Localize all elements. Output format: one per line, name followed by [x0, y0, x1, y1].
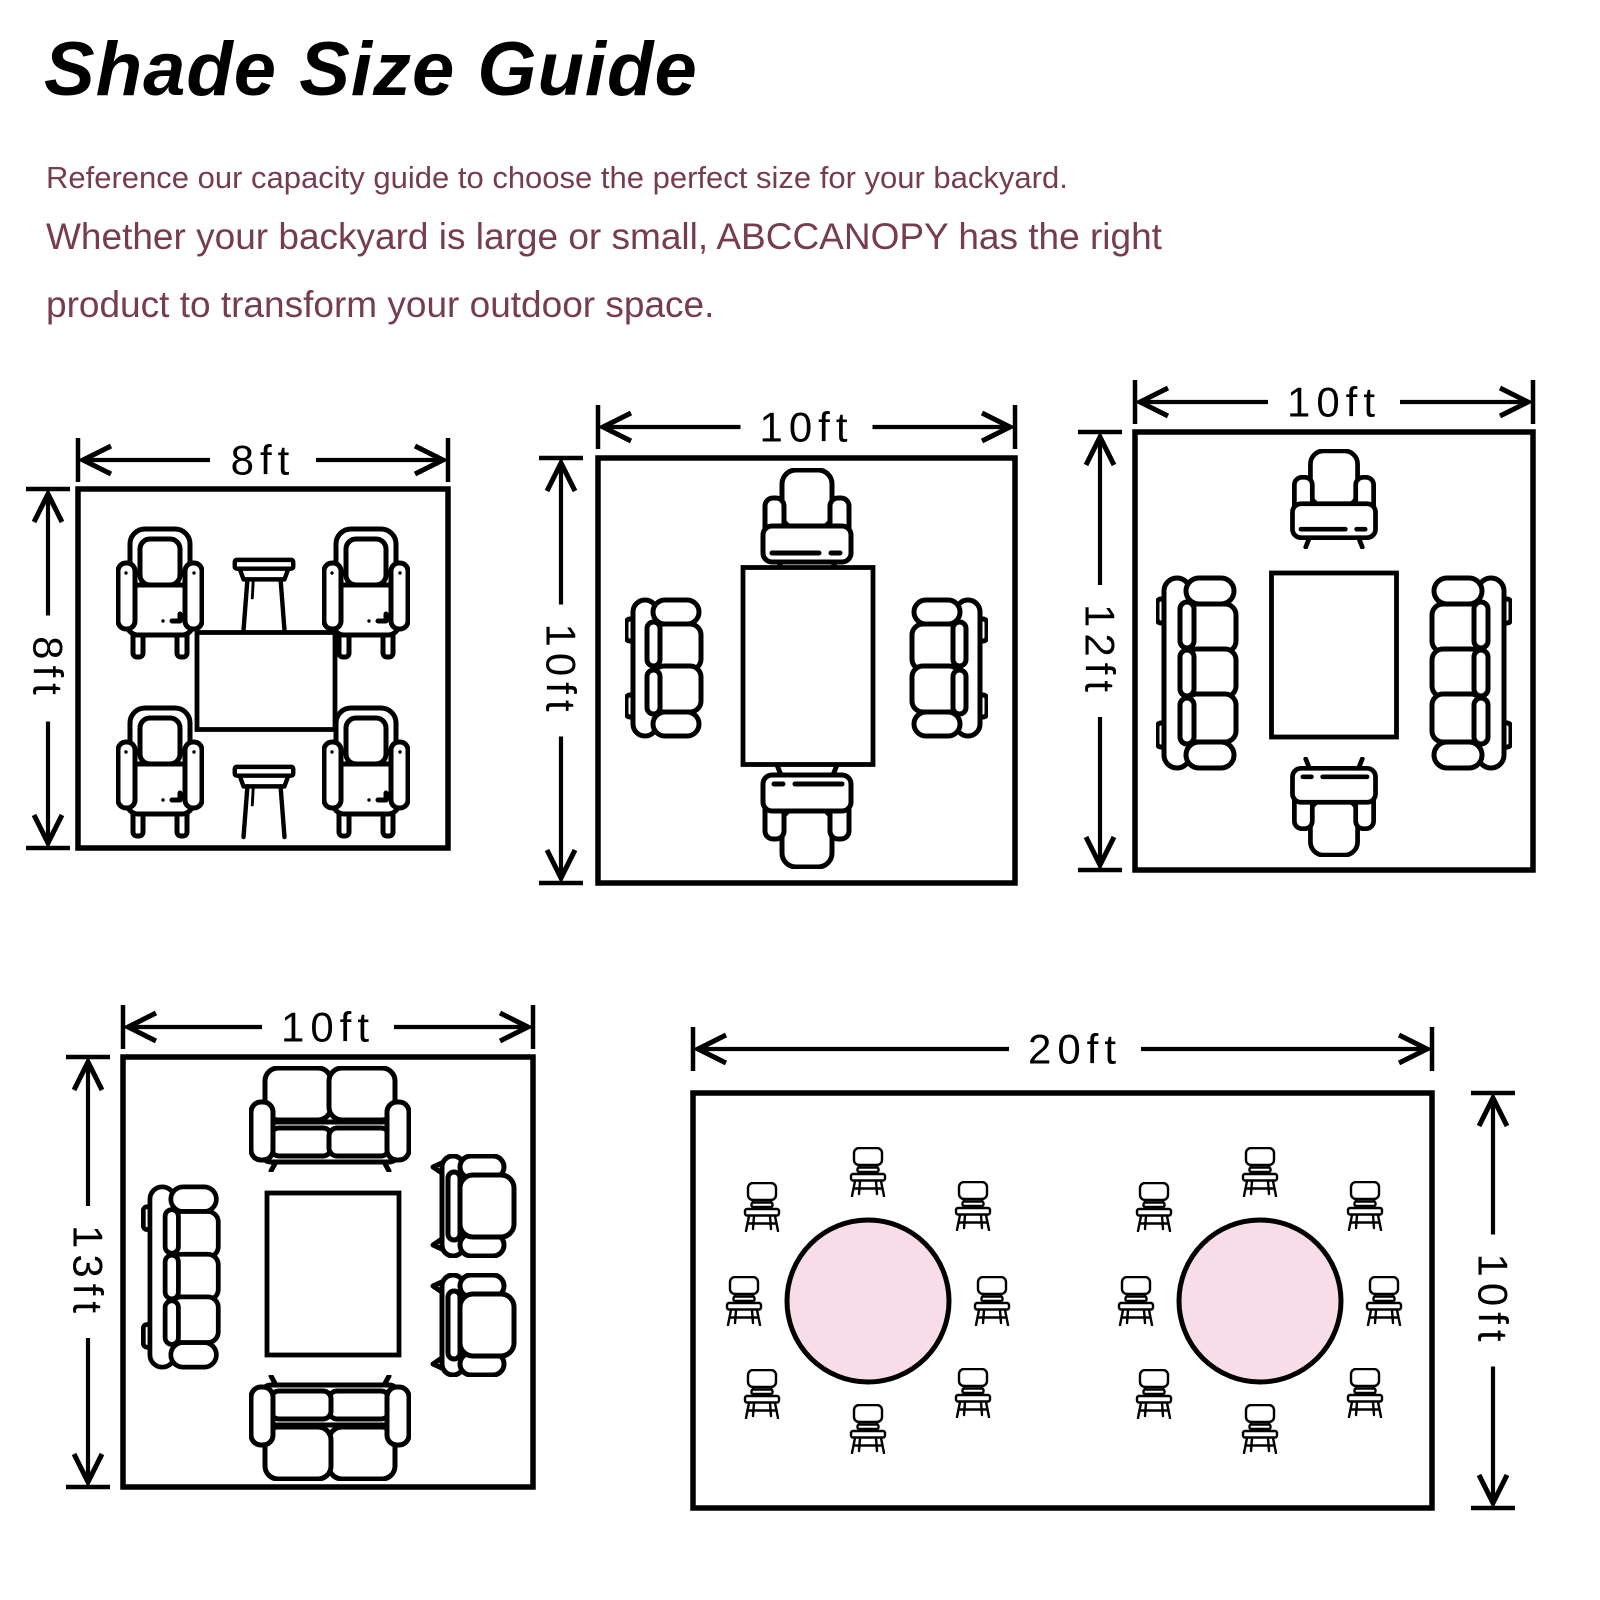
chair-icon	[1348, 1369, 1382, 1417]
armchair-top-glyph	[433, 1156, 514, 1256]
dimension-label: 12ft	[1077, 604, 1124, 698]
armchair2-front-icon	[1292, 451, 1375, 547]
chair-glyph	[745, 1183, 779, 1231]
chair-glyph	[1137, 1370, 1171, 1418]
armchair-front-icon	[118, 708, 202, 836]
armchair2-front-icon	[763, 765, 851, 867]
sofa3-top-glyph	[1432, 578, 1511, 768]
loveseat-front-icon	[251, 1068, 409, 1171]
dimension-label: 8ft	[25, 636, 72, 701]
armchair2-front-glyph	[1292, 759, 1375, 855]
chair-icon	[975, 1277, 1009, 1325]
dimension-label: 8ft	[231, 437, 296, 484]
chair-glyph	[727, 1277, 761, 1325]
coffee-table-icon	[1272, 573, 1397, 737]
chair-glyph	[975, 1277, 1009, 1325]
coffee-table-icon	[267, 1193, 399, 1355]
chair-glyph	[1137, 1183, 1171, 1231]
armchair-top-icon	[433, 1156, 514, 1256]
dimension-label: 10ft	[281, 1004, 375, 1051]
sofa3-top-glyph	[1157, 578, 1236, 768]
chair-icon	[745, 1183, 779, 1231]
floor-plan-10x13: 10ft13ft	[65, 1004, 534, 1488]
side-table-glyph	[235, 767, 294, 837]
chair-glyph	[956, 1369, 990, 1417]
floor-plan-10x12: 10ft12ft	[1077, 379, 1534, 871]
chair-icon	[851, 1148, 885, 1196]
floor-plan-canvas: 8ft8ft10ft10ft10ft12ft10ft13ft20ft10ft	[0, 0, 1600, 1600]
chair-icon	[1243, 1405, 1277, 1453]
armchair2-front-icon	[763, 470, 851, 572]
dimension-label: 13ft	[65, 1225, 112, 1319]
loveseat-front-icon	[251, 1376, 409, 1479]
sofa2-top-glyph	[626, 600, 701, 736]
loveseat-front-glyph	[251, 1376, 409, 1479]
armchair-front-glyph	[118, 708, 202, 836]
chair-icon	[1137, 1370, 1171, 1418]
side-table-glyph	[235, 560, 294, 630]
armchair-top-icon	[433, 1275, 514, 1375]
chair-glyph	[1348, 1182, 1382, 1230]
dimension-label: 10ft	[759, 404, 853, 451]
sofa2-top-icon	[626, 600, 701, 736]
sofa3-top-icon	[1432, 578, 1511, 768]
size-guide-infographic: Shade Size Guide Reference our capacity …	[0, 0, 1600, 1600]
coffee-table-icon	[743, 568, 873, 765]
sofa3-top-glyph	[143, 1187, 218, 1367]
chair-icon	[745, 1370, 779, 1418]
chair-icon	[1119, 1277, 1153, 1325]
chair-icon	[851, 1405, 885, 1453]
dimension-label: 10ft	[538, 623, 585, 717]
armchair-front-icon	[118, 529, 202, 657]
chair-glyph	[745, 1370, 779, 1418]
chair-glyph	[1367, 1277, 1401, 1325]
chair-icon	[1367, 1277, 1401, 1325]
dimension-label: 10ft	[1470, 1253, 1517, 1347]
chair-glyph	[1243, 1405, 1277, 1453]
sofa2-top-icon	[912, 600, 987, 736]
armchair-front-icon	[324, 708, 408, 836]
sofa3-top-icon	[143, 1187, 218, 1367]
dimension-label: 20ft	[1028, 1026, 1122, 1073]
chair-glyph	[956, 1182, 990, 1230]
armchair-front-glyph	[118, 529, 202, 657]
armchair2-front-glyph	[763, 765, 851, 867]
chair-glyph	[851, 1405, 885, 1453]
chair-glyph	[851, 1148, 885, 1196]
armchair-top-glyph	[433, 1275, 514, 1375]
chair-icon	[956, 1182, 990, 1230]
chair-glyph	[1243, 1148, 1277, 1196]
chair-icon	[956, 1369, 990, 1417]
round-table-icon	[787, 1220, 949, 1382]
loveseat-front-glyph	[251, 1068, 409, 1171]
dimension-label: 10ft	[1287, 379, 1381, 426]
chair-icon	[1137, 1183, 1171, 1231]
round-table-icon	[1179, 1220, 1341, 1382]
armchair2-front-glyph	[1292, 451, 1375, 547]
floor-plan-8x8: 8ft8ft	[25, 437, 449, 849]
coffee-table-icon	[197, 633, 335, 730]
sofa3-top-icon	[1157, 578, 1236, 768]
chair-icon	[727, 1277, 761, 1325]
armchair-front-glyph	[324, 708, 408, 836]
chair-icon	[1348, 1182, 1382, 1230]
floor-plan-20x10: 20ft10ft	[693, 1026, 1517, 1509]
sofa2-top-glyph	[912, 600, 987, 736]
side-table-icon	[235, 560, 294, 630]
side-table-icon	[235, 767, 294, 837]
armchair2-front-glyph	[763, 470, 851, 572]
chair-glyph	[1119, 1277, 1153, 1325]
chair-icon	[1243, 1148, 1277, 1196]
chair-glyph	[1348, 1369, 1382, 1417]
floor-plan-10x10: 10ft10ft	[538, 404, 1016, 884]
armchair2-front-icon	[1292, 759, 1375, 855]
